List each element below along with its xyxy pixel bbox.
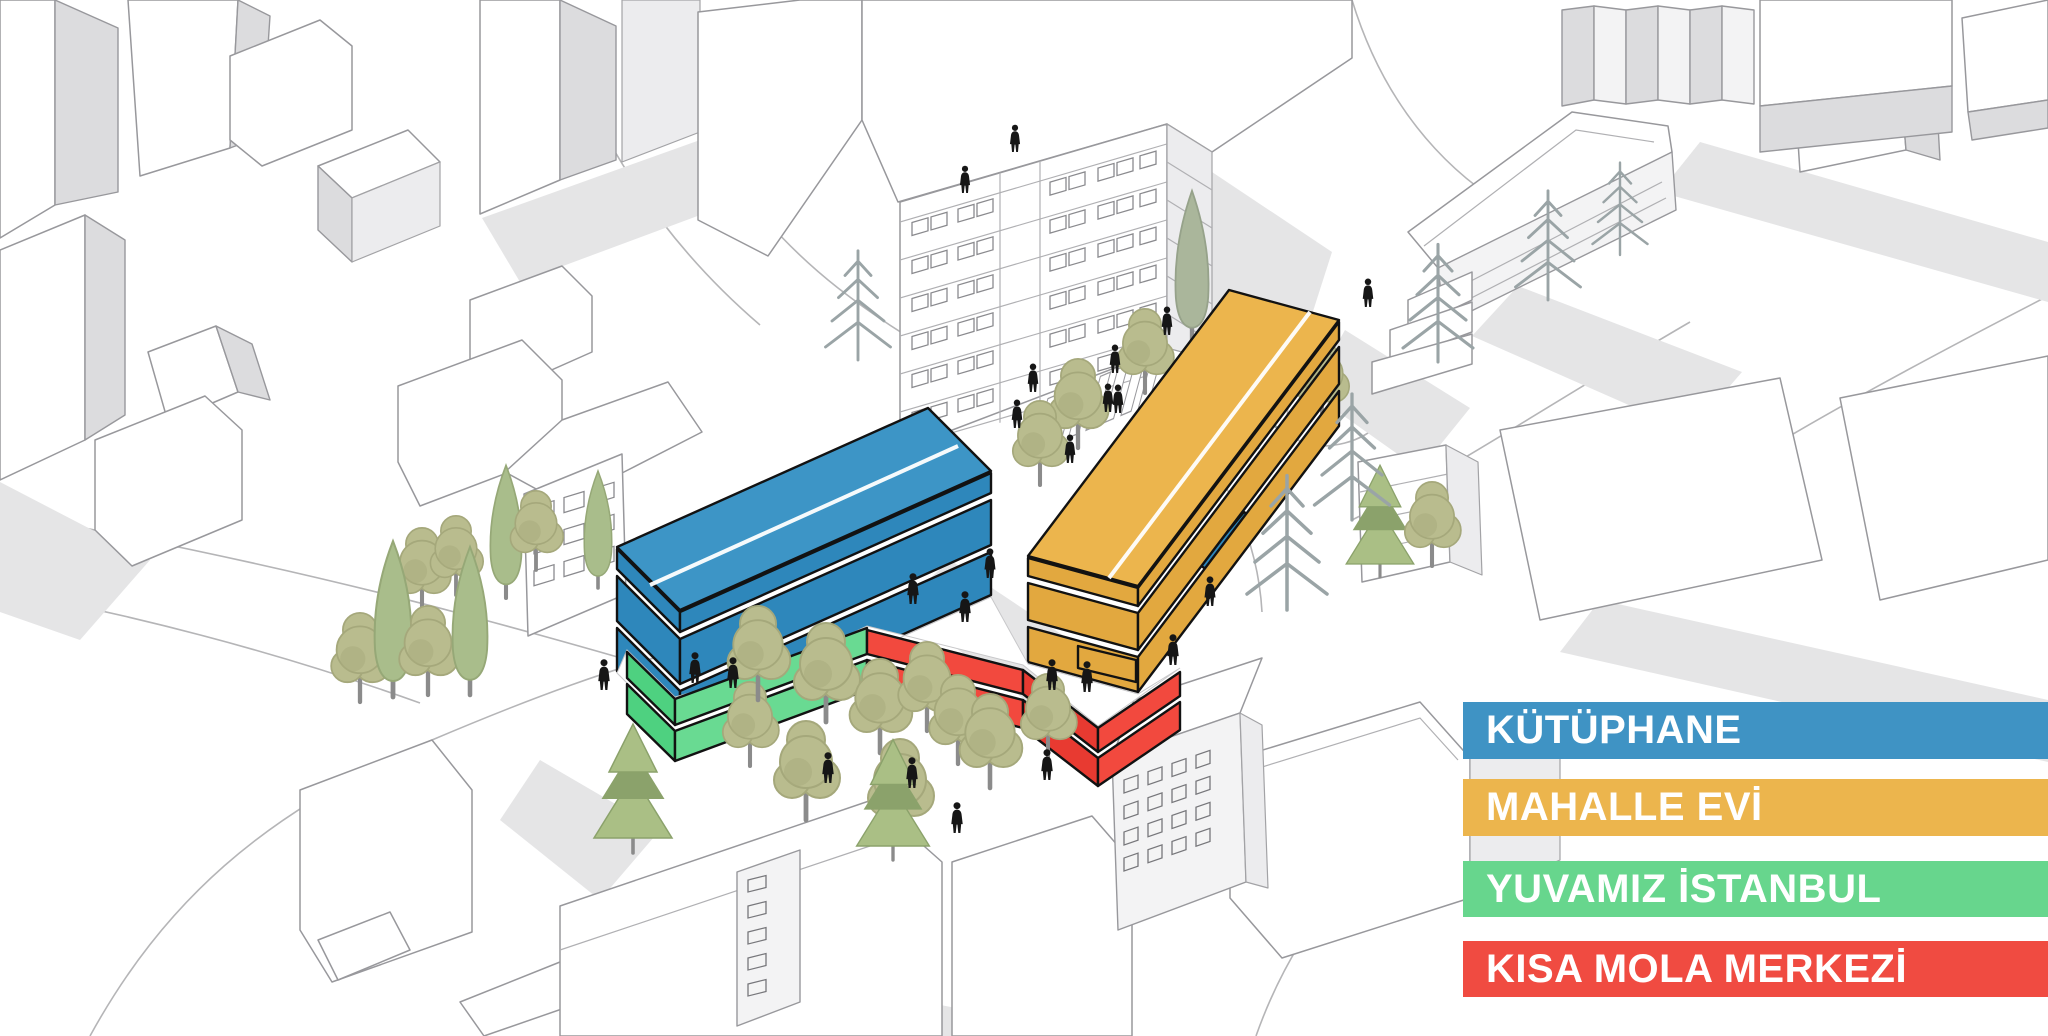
sketch-pine-icon <box>826 251 891 360</box>
pedestrian-icon <box>598 659 609 690</box>
site-illustration <box>0 0 2048 1036</box>
pedestrian-icon <box>1363 279 1374 307</box>
pedestrian-icon <box>1041 749 1052 780</box>
page: KÜTÜPHANE MAHALLE EVİ YUVAMIZ İSTANBUL K… <box>0 0 2048 1036</box>
accordion-facade <box>1562 6 1754 106</box>
pedestrian-icon <box>951 802 962 833</box>
